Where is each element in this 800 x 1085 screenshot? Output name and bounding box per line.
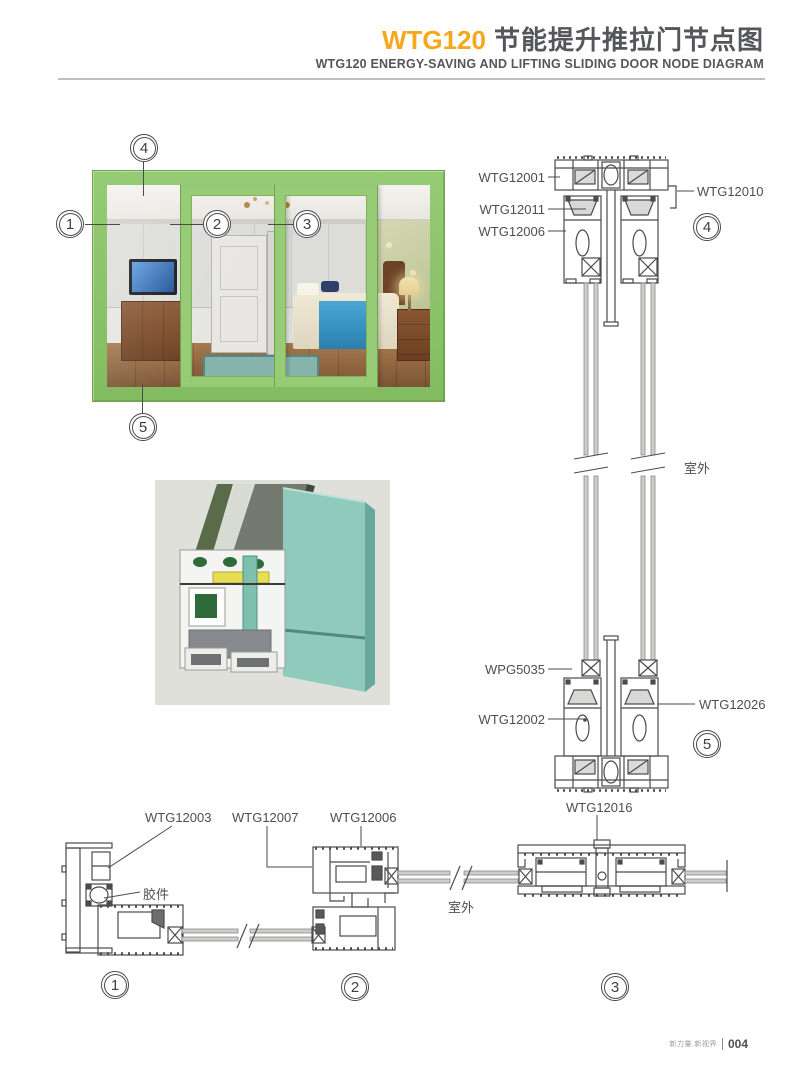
footer-divider bbox=[722, 1038, 723, 1050]
page-subtitle: WTG120 ENERGY-SAVING AND LIFTING SLIDING… bbox=[316, 58, 764, 72]
leader-callout-5 bbox=[142, 384, 143, 413]
footer-slogan: 新力量.新视界 bbox=[670, 1039, 717, 1049]
glazing-block-top bbox=[582, 258, 657, 276]
horizontal-details-drawing bbox=[40, 795, 780, 1020]
callout-5: 5 bbox=[129, 413, 157, 441]
callout-section-4: 4 bbox=[693, 213, 721, 241]
center-fin-bottom bbox=[604, 636, 618, 756]
sash-sill-left bbox=[564, 678, 601, 756]
callout-section-5: 5 bbox=[693, 730, 721, 758]
label-wtg12006-horizontal: WTG12006 bbox=[330, 810, 396, 825]
glass-columns bbox=[584, 283, 655, 660]
label-gasket: 胶件 bbox=[143, 884, 169, 903]
leader-callout-2 bbox=[170, 224, 203, 225]
callout-4: 4 bbox=[130, 134, 158, 162]
sliding-sash-2 bbox=[181, 185, 285, 387]
break-symbols bbox=[574, 453, 665, 473]
label-wtg12006-vertical: WTG12006 bbox=[479, 224, 545, 239]
page-title: WTG120节能提升推拉门节点图 bbox=[316, 26, 764, 55]
callout-1: 1 bbox=[56, 210, 84, 238]
callout-detail-1: 1 bbox=[101, 971, 129, 999]
label-wtg12026: WTG12026 bbox=[699, 697, 765, 712]
header-rule bbox=[58, 78, 765, 80]
label-outdoor-horizontal: 室外 bbox=[448, 897, 474, 916]
title-chinese: 节能提升推拉门节点图 bbox=[494, 25, 764, 55]
leader-callout-1 bbox=[85, 224, 120, 225]
page-header: WTG120节能提升推拉门节点图 WTG120 ENERGY-SAVING AN… bbox=[316, 26, 764, 71]
sash-sill-right bbox=[621, 678, 658, 756]
callout-3: 3 bbox=[293, 210, 321, 238]
label-wpg5035: WPG5035 bbox=[485, 662, 545, 677]
leader-callout-4 bbox=[143, 162, 144, 196]
label-wtg12003: WTG12003 bbox=[145, 810, 211, 825]
callout-detail-3: 3 bbox=[601, 973, 629, 1001]
callout-2: 2 bbox=[203, 210, 231, 238]
glass-run-right bbox=[685, 871, 726, 883]
glazing-block-bottom bbox=[582, 660, 657, 676]
glass-run-upper bbox=[398, 871, 518, 883]
label-wtg12011: WTG12011 bbox=[479, 202, 545, 217]
center-fin-top bbox=[604, 190, 618, 326]
detail-3-mullion bbox=[518, 840, 685, 896]
glass-run-lower bbox=[182, 929, 312, 941]
label-outdoor-vertical: 室外 bbox=[684, 458, 710, 477]
catalog-page: WTG120节能提升推拉门节点图 WTG120 ENERGY-SAVING AN… bbox=[0, 0, 800, 1085]
page-footer: 新力量.新视界 004 bbox=[670, 1037, 748, 1051]
profile-render-figure bbox=[155, 480, 390, 705]
sliding-door-figure bbox=[92, 170, 445, 402]
model-code: WTG120 bbox=[382, 25, 486, 55]
label-wtg12007: WTG12007 bbox=[232, 810, 298, 825]
profile-render-art bbox=[155, 480, 390, 705]
sliding-sash-3 bbox=[275, 185, 377, 387]
callout-detail-2: 2 bbox=[341, 973, 369, 1001]
sill-frame bbox=[555, 756, 668, 792]
label-wtg12016: WTG12016 bbox=[566, 800, 632, 815]
label-wtg12010: WTG12010 bbox=[697, 184, 763, 199]
label-wtg12001: WTG12001 bbox=[479, 170, 545, 185]
window-scene bbox=[107, 185, 430, 387]
label-wtg12002: WTG12002 bbox=[479, 712, 545, 727]
leader-callout-3 bbox=[268, 224, 293, 225]
detail-2-interlock bbox=[313, 847, 398, 950]
page-number: 004 bbox=[728, 1037, 748, 1051]
head-cover-cap bbox=[668, 186, 676, 208]
